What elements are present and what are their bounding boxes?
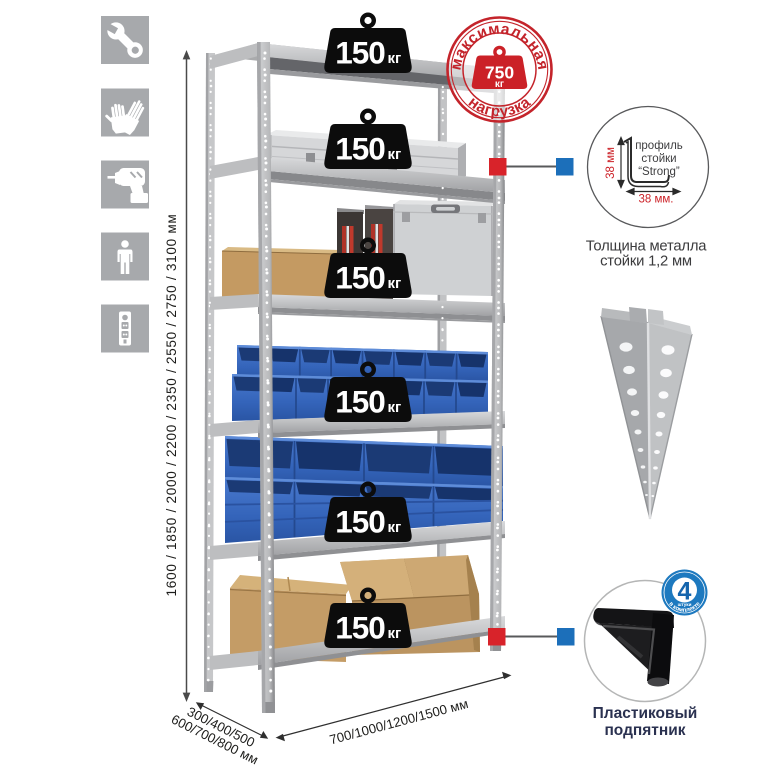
svg-text:38 мм: 38 мм bbox=[605, 147, 617, 179]
svg-text:стойки 1,2 мм: стойки 1,2 мм bbox=[600, 254, 692, 270]
svg-text:1600 / 1850 / 2000 / 2200 / 23: 1600 / 1850 / 2000 / 2200 / 2350 / 2550 … bbox=[164, 214, 179, 597]
svg-text:Пластиковый: Пластиковый bbox=[593, 705, 698, 722]
svg-text:подпятник: подпятник bbox=[604, 722, 685, 739]
svg-text:кг: кг bbox=[495, 79, 504, 90]
svg-text:штуки: штуки bbox=[678, 602, 692, 607]
svg-text:стойки: стойки bbox=[641, 153, 676, 165]
svg-text:“Strong”: “Strong” bbox=[638, 166, 680, 178]
svg-text:профиль: профиль bbox=[635, 140, 683, 152]
svg-text:Толщина металла: Толщина металла bbox=[586, 239, 708, 255]
svg-text:38 мм.: 38 мм. bbox=[639, 194, 674, 206]
svg-text:700/1000/1200/1500 мм: 700/1000/1200/1500 мм bbox=[328, 696, 470, 747]
